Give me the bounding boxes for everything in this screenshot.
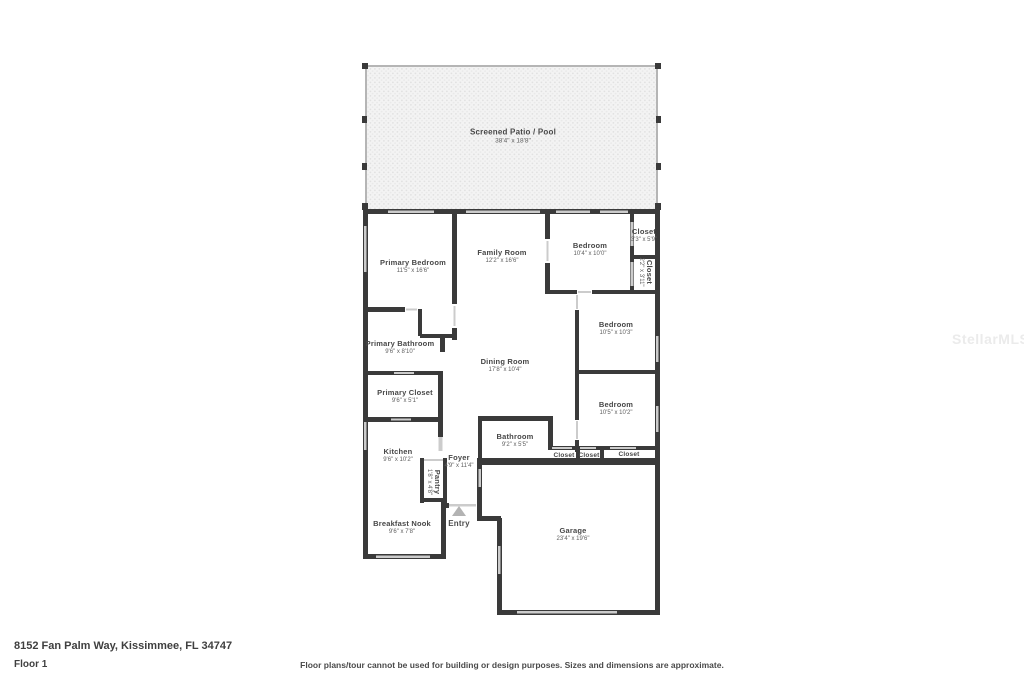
stellar-mls-watermark: StellarMLS xyxy=(952,331,1024,347)
patio-area xyxy=(362,63,661,210)
disclaimer-text: Floor plans/tour cannot be used for buil… xyxy=(0,660,1024,670)
openings-layer xyxy=(364,211,659,614)
entry-arrow-icon xyxy=(452,506,466,516)
property-address: 8152 Fan Palm Way, Kissimmee, FL 34747 xyxy=(14,640,232,652)
floor-plan-drawing xyxy=(0,0,1024,682)
floor-plan-canvas: Screened Patio / Pool 38'4" x 18'8" Prim… xyxy=(0,0,1024,682)
walls-layer xyxy=(363,209,660,615)
